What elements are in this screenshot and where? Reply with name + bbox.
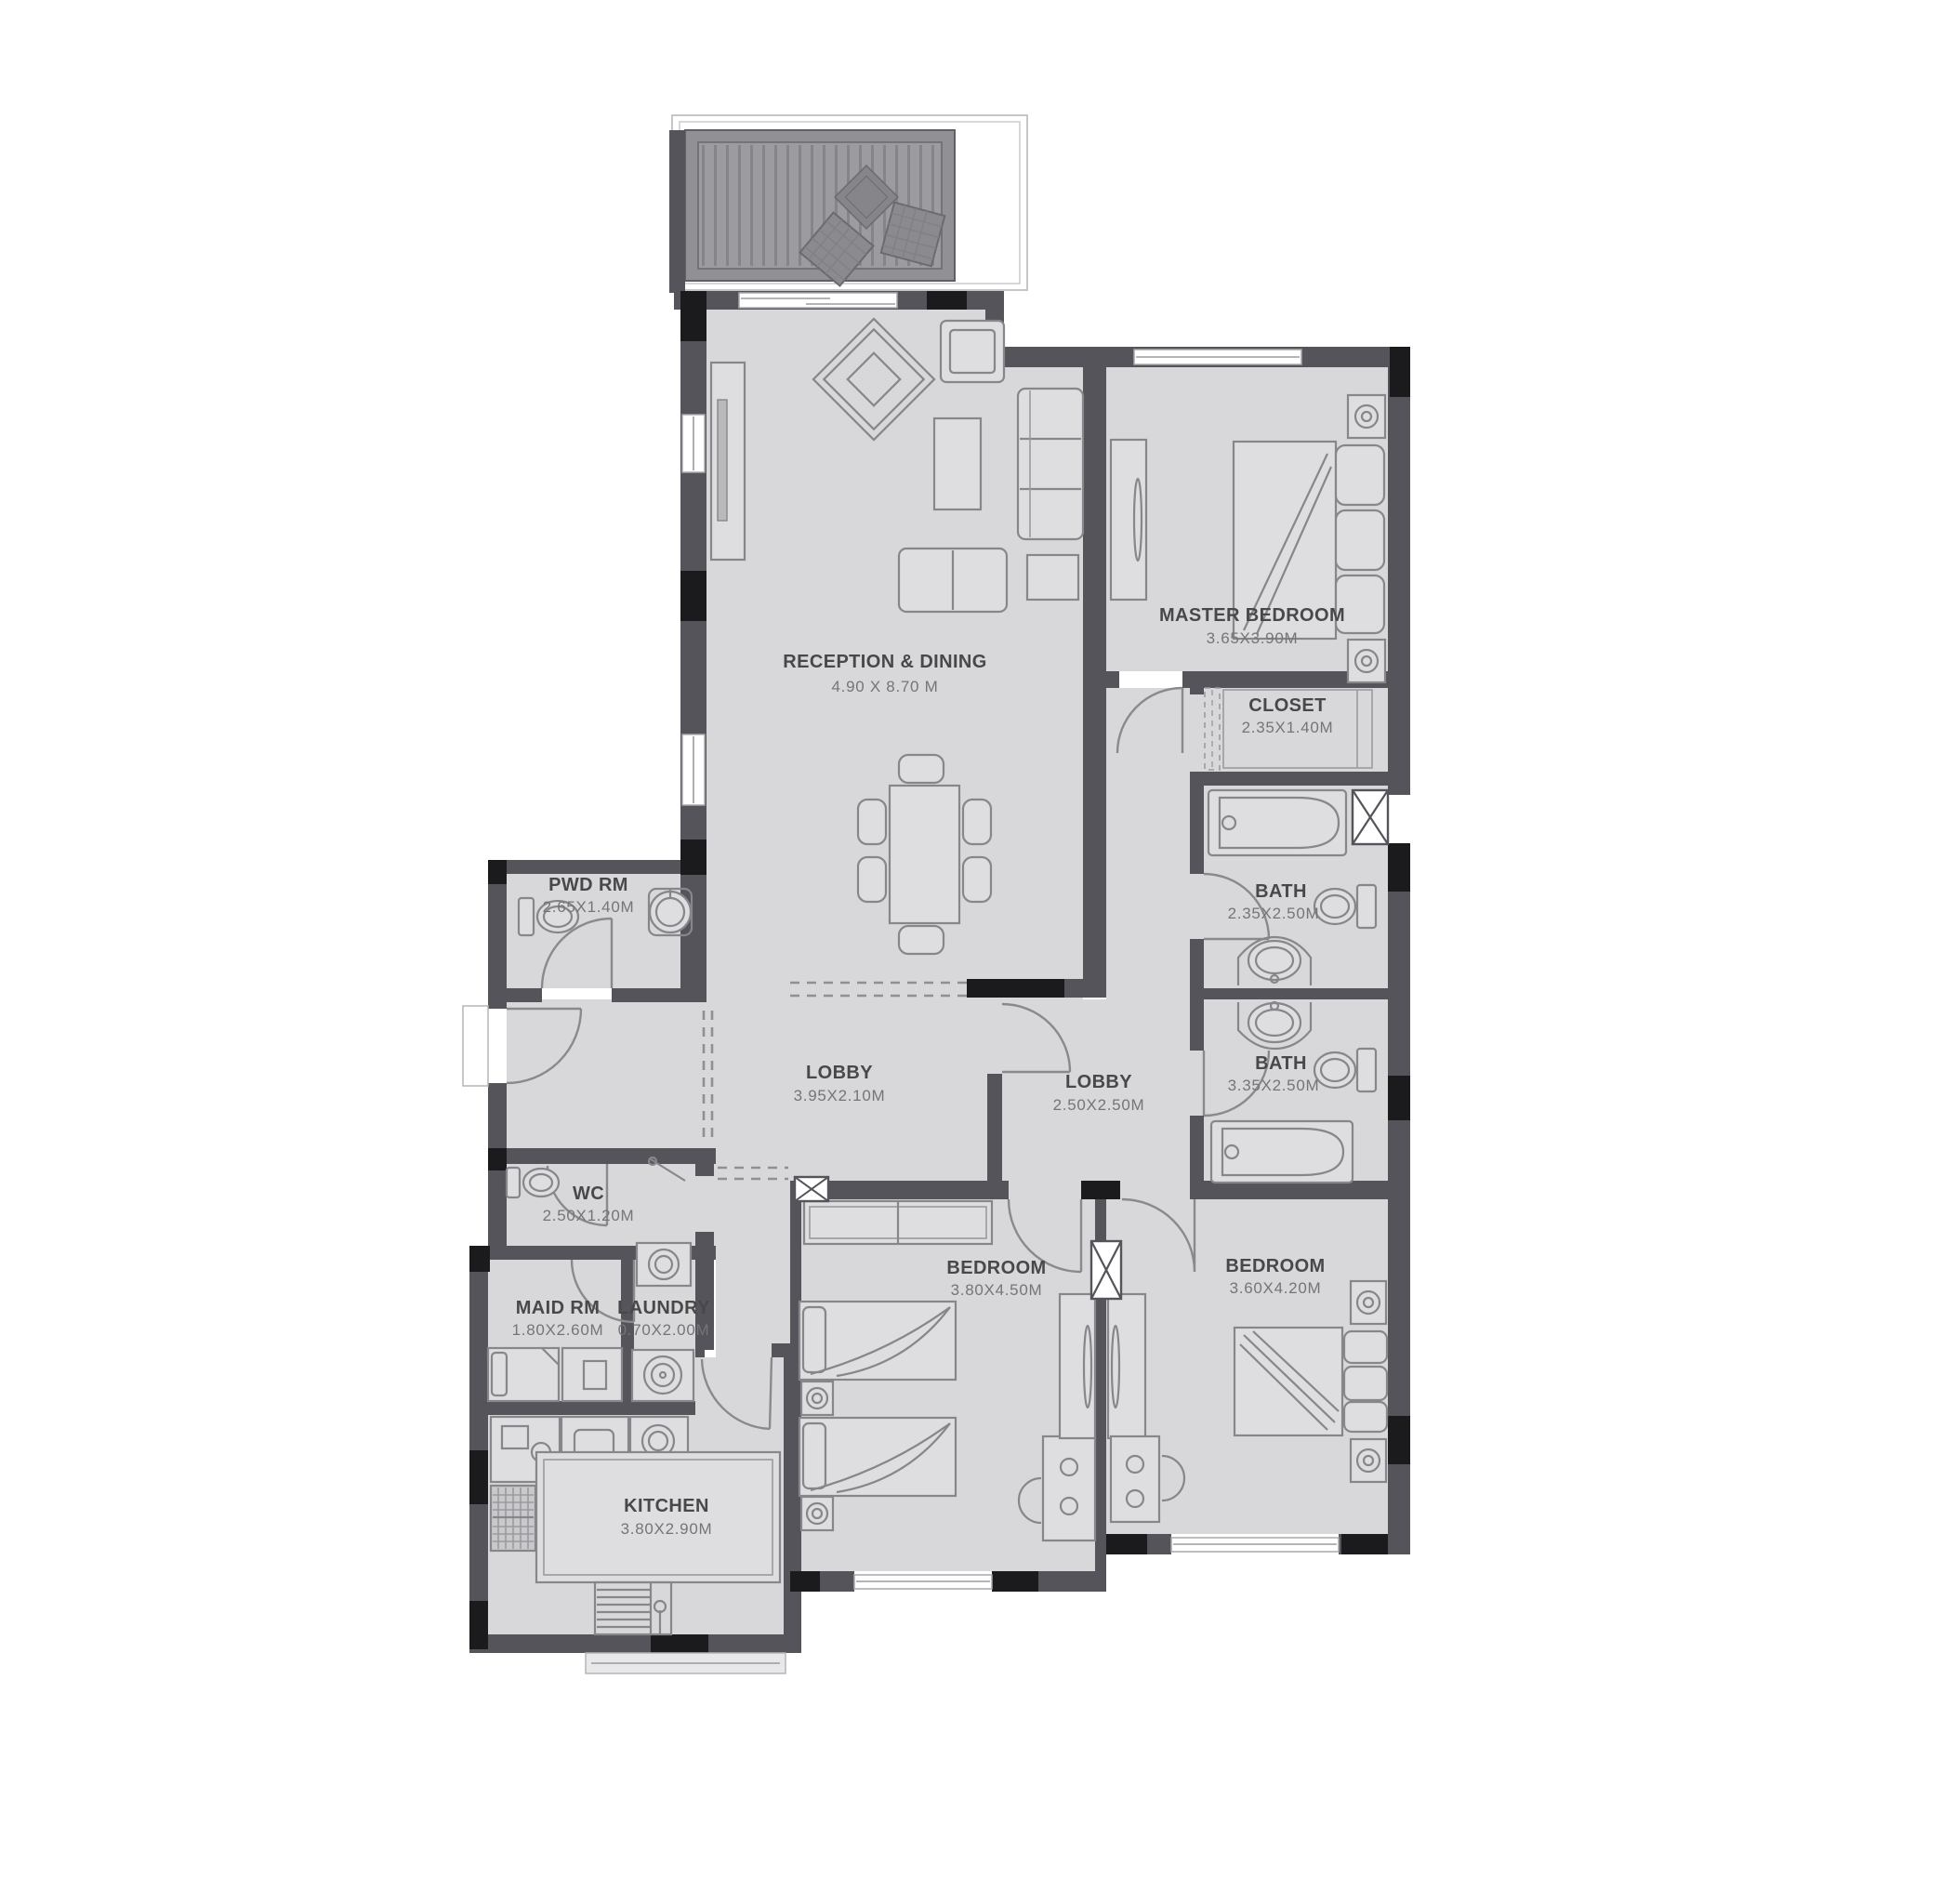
shaft-icon — [1353, 790, 1388, 844]
floor-plan-page: RECEPTION & DINING 4.90 X 8.70 M MASTER … — [0, 0, 1941, 1904]
room-label-maid-room: MAID RM — [516, 1298, 601, 1318]
room-label-bedroom-2: BEDROOM — [946, 1258, 1046, 1278]
room-dims-kitchen: 3.80X2.90M — [621, 1520, 713, 1538]
nightstand-icon — [801, 1382, 833, 1415]
entry-landing-step — [463, 1006, 488, 1086]
balcony — [672, 115, 1027, 290]
room-dims-powder-room: 2.65X1.40M — [543, 898, 635, 916]
room-label-bath-master: BATH — [1255, 881, 1307, 902]
room-label-laundry: LAUNDRY — [617, 1298, 710, 1318]
room-dims-wc: 2.50X1.20M — [543, 1207, 635, 1224]
room-dims-bath-master: 2.35X2.50M — [1228, 905, 1320, 922]
shaft-icon — [795, 1177, 828, 1201]
room-dims-laundry: 0.70X2.00M — [618, 1321, 710, 1339]
floor-plan-canvas: RECEPTION & DINING 4.90 X 8.70 M MASTER … — [0, 0, 1941, 1904]
nightstand-icon — [1348, 640, 1385, 682]
lobby-opening-floor — [987, 999, 1002, 1074]
kitchen-island — [536, 1452, 780, 1582]
room-dims-closet: 2.35X1.40M — [1242, 719, 1334, 736]
bed-icon — [1235, 1328, 1387, 1435]
desk-icon — [1111, 1436, 1159, 1522]
passage-floor — [716, 1164, 790, 1357]
coffee-table-icon — [934, 418, 981, 509]
room-label-kitchen: KITCHEN — [624, 1496, 709, 1516]
bed-icon — [799, 1302, 956, 1380]
room-dims-bedroom-2: 3.80X4.50M — [951, 1281, 1043, 1299]
room-label-closet: CLOSET — [1248, 695, 1327, 716]
room-dims-master-bedroom: 3.65X3.90M — [1207, 629, 1299, 647]
room-label-reception: RECEPTION & DINING — [783, 652, 986, 672]
bathtub-icon — [1211, 1121, 1353, 1183]
room-dims-bedroom-3: 3.60X4.20M — [1230, 1279, 1322, 1297]
desk-icon — [1043, 1436, 1095, 1540]
room-dims-lobby-bedrooms: 2.50X2.50M — [1053, 1096, 1145, 1114]
room-label-bath-shared: BATH — [1255, 1053, 1307, 1074]
shaft-icon — [1091, 1241, 1121, 1299]
nightstand-icon — [1348, 395, 1385, 438]
room-dims-maid-room: 1.80X2.60M — [512, 1321, 604, 1339]
maid-room-furniture — [488, 1348, 622, 1401]
nightstand-icon — [1351, 1281, 1386, 1324]
room-label-master-bedroom: MASTER BEDROOM — [1159, 605, 1345, 626]
shaft-vent-notch — [1388, 795, 1412, 843]
room-label-bedroom-3: BEDROOM — [1225, 1256, 1325, 1276]
toilet-icon — [507, 1168, 559, 1197]
exterior-notch — [1004, 310, 1083, 349]
nightstand-icon — [1351, 1439, 1386, 1482]
bed-icon — [488, 1348, 559, 1401]
bed-icon — [799, 1418, 956, 1496]
washer-icon — [632, 1350, 693, 1401]
room-dims-reception: 4.90 X 8.70 M — [832, 678, 939, 695]
cabinet-icon — [562, 1348, 622, 1401]
room-label-lobby-bedrooms: LOBBY — [1065, 1072, 1132, 1092]
nightstand-icon — [801, 1497, 833, 1530]
toilet-icon — [1314, 1049, 1376, 1091]
room-dims-lobby-main: 3.95X2.10M — [794, 1087, 886, 1104]
side-table-icon — [1027, 555, 1078, 600]
entry-door-opening — [488, 1009, 507, 1083]
wardrobe-icon — [804, 1201, 992, 1244]
sofa-icon — [1018, 389, 1083, 539]
tv-console-icon — [711, 363, 745, 560]
wardrobe-icon — [1108, 1294, 1145, 1438]
stove-icon — [491, 1486, 535, 1551]
room-dims-bath-shared: 3.35X2.50M — [1228, 1077, 1320, 1094]
room-label-powder-room: PWD RM — [548, 875, 628, 895]
room-label-wc: WC — [573, 1183, 604, 1204]
balcony-window — [739, 293, 897, 308]
toilet-icon — [1314, 885, 1376, 928]
bathtub-icon — [1208, 790, 1346, 855]
room-label-lobby-main: LOBBY — [806, 1063, 873, 1083]
laundry-sink-icon — [637, 1243, 691, 1286]
wardrobe-icon — [1060, 1294, 1095, 1438]
entry-hall-floor — [507, 999, 705, 1148]
